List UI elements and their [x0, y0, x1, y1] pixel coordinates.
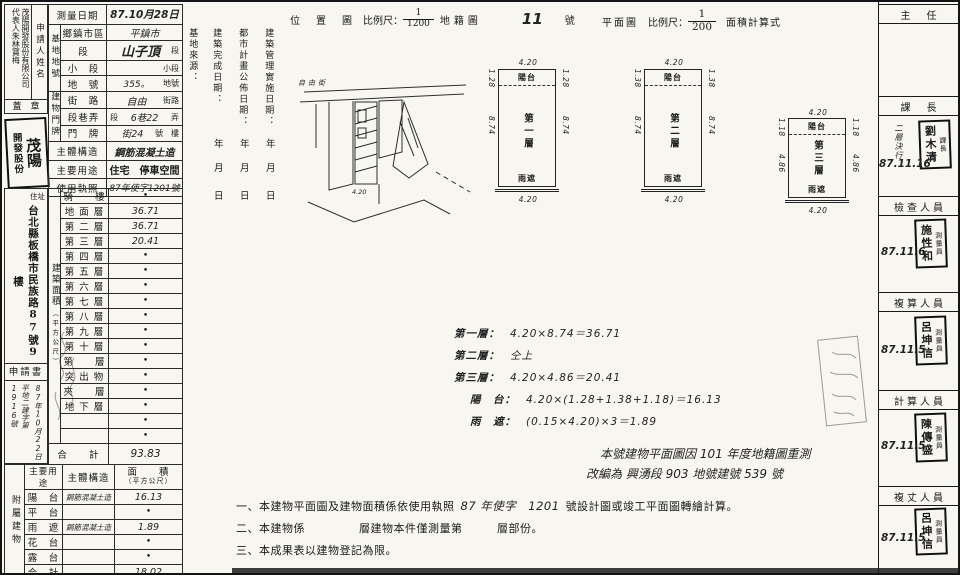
row-label: 街 路	[61, 92, 107, 109]
completion-date-label: 建築完成日期：	[210, 28, 221, 105]
mgmt-impl-date-label: 建築管理實施日期：	[262, 28, 273, 127]
dim-body-depth: 8.74	[707, 116, 716, 135]
year-char: 年	[266, 136, 276, 150]
floor-label: 地 面 層	[61, 204, 109, 219]
balcony-label: 陽台	[645, 70, 701, 86]
dim-balcony-depth: 1.38	[707, 69, 716, 88]
annex-area: •	[115, 535, 183, 550]
annex-structure	[63, 505, 115, 520]
annex-table: 附屬建物 主要用途 主體構造 面 積（平方公尺） 陽 台鋼筋混凝土造16.13 …	[4, 464, 183, 575]
floor-name-label: 第二層	[666, 113, 680, 151]
location-scale-label: 比例尺：	[363, 12, 403, 27]
eave-line	[495, 189, 559, 192]
dim-balcony-depth: 1.38	[633, 69, 642, 88]
floor-value: •	[109, 399, 183, 414]
annex-area: 1.89	[115, 520, 183, 535]
applicant-name: 茂陽開發股份有限公司 代表人朱林寶梅	[5, 5, 31, 99]
stamp-date: 87.11.5	[881, 344, 926, 356]
official-title-calculator: 計算人員	[879, 390, 960, 410]
calc-header-label: 面積計算式	[726, 14, 781, 29]
township-value: 平鎮市	[110, 25, 179, 40]
stamp-date: 87.11.16	[879, 158, 931, 170]
floor-value: •	[109, 414, 183, 429]
stamp-date: 87.11.5	[881, 440, 926, 452]
floor-value: •	[109, 189, 183, 204]
floor-value: •	[109, 429, 183, 444]
plan-outline: 陽台 第三層 雨遮	[788, 118, 846, 198]
officials-column: 主 任 課 長 二層決行 課長 劉木清 87.11.16 檢查人員 測量員 施性…	[878, 2, 960, 575]
annex-usage: 花 台	[25, 535, 63, 550]
plan-outline: 陽台 第二層 雨遮	[644, 69, 702, 187]
section-value: 山子頂	[110, 41, 171, 60]
balcony-label: 陽台	[499, 70, 555, 86]
plan-title: 平面圖	[602, 14, 638, 29]
floor-name-label: 第一層	[520, 113, 534, 151]
day-char: 日	[240, 188, 250, 202]
applicant-label-cell: 申請人姓名	[31, 5, 47, 99]
plan-scale-fraction: 1200	[688, 9, 716, 32]
structure-label: 主體構造	[49, 142, 107, 161]
survey-date-value: 87.10月28日	[107, 5, 183, 25]
ghost-stamp-scribble	[814, 332, 874, 432]
sheet-number-suffix: 號	[565, 12, 575, 27]
row-label: 小 段	[61, 61, 107, 76]
road-label: 自由街	[298, 78, 328, 88]
structure-value: 鋼筋混凝土造	[107, 142, 183, 161]
floor-value: •	[109, 309, 183, 324]
address-cell: 住址 台北縣板橋市民族路87號9樓	[4, 188, 48, 364]
dim-balcony-depth: 1.18	[777, 118, 786, 137]
floor-plan-2: 4.20 陽台 第二層 雨遮 4.20 1.38 8.74 1.38 8.74	[624, 58, 724, 223]
floor-plan-header: 平面圖 比例尺： 1200 面積計算式	[602, 6, 872, 36]
floor-value: •	[109, 339, 183, 354]
floor-value: 36.71	[109, 204, 183, 219]
floor-label: 第 二 層	[61, 219, 109, 234]
official-title-recheck: 複算人員	[879, 292, 960, 312]
area-calculation-block: 第一層：4.20×8.74＝36.71 第二層：仝上 第三層：4.20×4.86…	[454, 322, 744, 432]
annex-col-area-sub: （平方公尺）	[115, 478, 182, 486]
building-survey-form: 茂陽開發股份有限公司 代表人朱林寶梅 申請人姓名 蓋 章 開發股份 茂陽 住址 …	[0, 0, 960, 575]
calc-line: 第二層：仝上	[454, 344, 744, 366]
row-label: 地 號	[61, 76, 107, 92]
floor-label: 第 七 層	[61, 294, 109, 309]
floor-value: 20.41	[109, 234, 183, 249]
dim-width: 4.20	[624, 58, 724, 67]
survey-date-label: 測量日期	[49, 5, 107, 25]
year-char: 年	[240, 136, 250, 150]
site-group-label: 基地地號	[50, 34, 59, 80]
month-char: 月	[214, 160, 224, 174]
floor-value: •	[109, 369, 183, 384]
day-char: 日	[266, 188, 276, 202]
year-char: 年	[214, 136, 224, 150]
annex-area: •	[115, 550, 183, 565]
floor-label: 第 六 層	[61, 279, 109, 294]
plan-announce-date-label: 都市計畫公佈日期：	[236, 28, 247, 127]
floor-label: 第 八 層	[61, 309, 109, 324]
remark-line-1: 本號建物平面圖因 101 年度地籍圖重測	[586, 444, 886, 464]
row-label: 段巷弄	[61, 109, 107, 125]
inspector-area: 測量員 施性和 87.11.6	[879, 216, 960, 292]
calculator-stamp: 測量員 陳傳盛	[914, 412, 948, 462]
floor-value: •	[109, 264, 183, 279]
dim-body-depth: 4.86	[851, 154, 860, 173]
annex-usage: 露 台	[25, 550, 63, 565]
annex-col-usage: 主要用途	[25, 465, 63, 490]
address-value: 台北縣板橋市民族路87號9樓	[11, 203, 41, 361]
annex-area: 18.02	[115, 565, 183, 575]
official-title-inspector: 檢查人員	[879, 196, 960, 216]
annex-structure	[63, 550, 115, 565]
cadastral-label: 地籍圖	[440, 12, 482, 27]
map-building-dim: 4.20	[352, 188, 366, 196]
sheet-number: 11	[522, 10, 543, 28]
month-char: 月	[240, 160, 250, 174]
row-label: 門 牌	[61, 125, 107, 141]
recheck-stamp: 測量員 呂坤信	[914, 315, 948, 365]
floor-value: •	[109, 294, 183, 309]
section-chief-area: 二層決行 課長 劉木清 87.11.16	[879, 116, 960, 196]
row-label: 鄉鎮市區	[61, 25, 107, 41]
door-number-value: 街24	[110, 126, 155, 140]
annex-structure: 鋼筋混凝土造	[63, 520, 115, 535]
annex-structure: 鋼筋混凝土造	[63, 490, 115, 505]
site-source-label: 基地來源：	[186, 28, 197, 83]
footnote-2: 二、本建物係層建物本件僅測量第 層部份。	[236, 520, 796, 542]
dim-balcony-depth: 1.18	[851, 118, 860, 137]
floor-value: •	[109, 279, 183, 294]
stamp-date: 87.11.5	[881, 532, 926, 544]
applicant-cell: 茂陽開發股份有限公司 代表人朱林寶梅 申請人姓名	[4, 4, 48, 100]
location-scale-fraction: 11200	[403, 9, 434, 29]
location-map: 自由街 4.20	[296, 52, 474, 242]
calc-line: 陽 台：4.20×(1.28+1.38+1.18)＝16.13	[454, 388, 744, 410]
floor-label: 第 四 層	[61, 249, 109, 264]
location-map-header: 位 置 圖 比例尺： 11200 地籍圖 11 號	[290, 6, 580, 32]
scan-artifact-band	[232, 568, 960, 575]
official-title-section-chief: 課 長	[879, 96, 960, 116]
footnote-1: 一、本建物平面圖及建物面積係依使用執照87 年使字 1201號設計圖或竣工平面圖…	[236, 498, 796, 520]
area-total-label: 合 計	[49, 444, 109, 465]
day-char: 日	[214, 188, 224, 202]
dim-balcony-depth: 1.28	[561, 69, 570, 88]
area-total-value: 93.83	[109, 444, 183, 465]
floor-plan-1: 4.20 陽台 第一層 雨遮 4.20 1.28 8.74 1.28 8.74	[478, 58, 578, 223]
annex-usage: 合 計	[25, 565, 63, 575]
floor-label: 騎 樓	[61, 189, 109, 204]
floor-value: •	[109, 324, 183, 339]
dim-body-depth: 8.74	[561, 116, 570, 135]
approval-note: 二層決行	[893, 124, 904, 160]
site-info-table: 測量日期 87.10月28日 基地地號 鄉鎮市區 平鎮市 段 山子頂段 小 段 …	[48, 4, 183, 197]
annex-usage: 陽 台	[25, 490, 63, 505]
balcony-label: 陽台	[789, 119, 845, 135]
eave-label: 雨遮	[645, 173, 701, 184]
annex-usage: 雨 遮	[25, 520, 63, 535]
lane-value: 6巷22	[118, 110, 171, 124]
annex-area: •	[115, 505, 183, 520]
annex-col-structure: 主體構造	[63, 465, 115, 490]
receipt-cell: 平地二建字第1916號 87年10月22日	[4, 380, 48, 464]
floor-value: •	[109, 249, 183, 264]
floor-value: •	[109, 384, 183, 399]
dim-width: 4.20	[478, 58, 578, 67]
dim-width: 4.20	[624, 195, 724, 204]
recheck-area: 測量員 呂坤信 87.11.5	[879, 312, 960, 390]
calc-line: 雨 遮：(0.15×4.20)×3＝1.89	[454, 410, 744, 432]
address-label: 住址	[30, 191, 45, 202]
receipt-date: 87年10月22日	[33, 384, 44, 463]
eave-label: 雨遮	[499, 173, 555, 184]
lot-number-value: 355。	[110, 77, 163, 90]
floor-label: 第 三 層	[61, 234, 109, 249]
annex-group-label: 附屬建物	[10, 495, 19, 547]
dim-body-depth: 8.74	[487, 116, 496, 135]
annex-usage: 平 台	[25, 505, 63, 520]
row-label: 段	[61, 41, 107, 61]
street-value: 自由	[110, 93, 163, 108]
plan-outline: 陽台 第一層 雨遮	[498, 69, 556, 187]
date-labels-block: 基地來源： 建築完成日期： 年 月 日 都市計畫公佈日期： 年 月 日 建築管理…	[186, 28, 290, 238]
company-seal: 開發股份 茂陽	[6, 118, 46, 186]
application-doc-label: 申請書	[4, 363, 48, 381]
eave-line	[785, 200, 849, 203]
seal-label: 蓋 章	[4, 99, 48, 114]
stamp-date: 87.11.6	[881, 246, 926, 258]
plan-scale-label: 比例尺：	[648, 14, 688, 29]
eave-line	[641, 189, 705, 192]
month-char: 月	[266, 160, 276, 174]
official-title-director: 主 任	[879, 4, 960, 24]
dim-width: 4.20	[478, 195, 578, 204]
inspector-stamp: 測量員 施性和	[914, 218, 948, 268]
applicant-label: 申請人姓名	[34, 23, 46, 81]
dim-balcony-depth: 1.28	[487, 69, 496, 88]
calc-line: 第一層：4.20×8.74＝36.71	[454, 322, 744, 344]
floor-name-label: 第三層	[810, 140, 824, 178]
annex-structure	[63, 565, 115, 575]
eave-label: 雨遮	[789, 184, 845, 195]
location-title: 位 置 圖	[290, 12, 355, 27]
floor-plan-3: 4.20 陽台 第三層 雨遮 4.20 1.18 4.86 1.18 4.86	[768, 108, 868, 228]
remeasure-remark: 本號建物平面圖因 101 年度地籍圖重測 改編為 興湧段 903 地號建號 53…	[586, 444, 886, 484]
floor-value: 36.71	[109, 219, 183, 234]
surveyor-area: 測量員 呂坤信 87.11.5	[879, 506, 960, 575]
dim-width: 4.20	[768, 108, 868, 117]
official-title-surveyor: 複丈人員	[879, 486, 960, 506]
usage-value: 住宅 停車空間	[107, 161, 183, 179]
calculator-area: 測量員 陳傳盛 87.11.5	[879, 410, 960, 486]
pencil-scribble	[44, 328, 88, 432]
dim-body-depth: 8.74	[633, 116, 642, 135]
annex-structure	[63, 535, 115, 550]
dim-width: 4.20	[768, 206, 868, 215]
annex-area: 16.13	[115, 490, 183, 505]
calc-line: 第三層：4.20×4.86＝20.41	[454, 366, 744, 388]
footnote-3: 三、本成果表以建物登記為限。	[236, 542, 796, 564]
footnotes: 一、本建物平面圖及建物面積係依使用執照87 年使字 1201號設計圖或竣工平面圖…	[236, 498, 796, 564]
door-group-label: 建物門牌	[50, 92, 59, 138]
dim-body-depth: 4.86	[777, 154, 786, 173]
usage-label: 主要用途	[49, 161, 107, 179]
receipt-number: 平地二建字第1916號	[9, 384, 31, 463]
area-group-label: 建築面積	[50, 263, 59, 307]
floor-label: 第 五 層	[61, 264, 109, 279]
floor-value: •	[109, 354, 183, 369]
remark-line-2: 改編為 興湧段 903 地號建號 539 號	[586, 464, 886, 484]
seal-text-large: 茂陽	[23, 137, 46, 168]
